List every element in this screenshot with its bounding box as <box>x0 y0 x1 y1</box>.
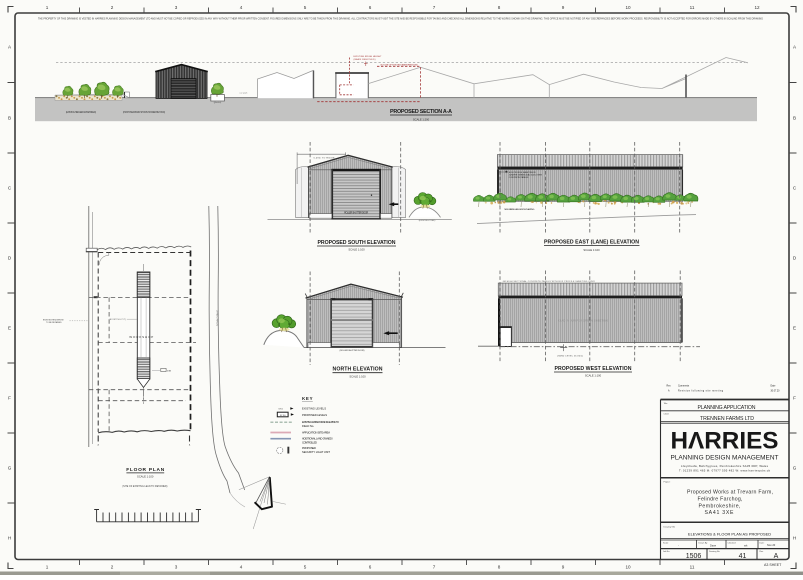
svg-text:Date:: Date: <box>760 541 765 544</box>
svg-text:12: 12 <box>754 5 760 10</box>
svg-text:OUTLINE OF EXISTING BARN REMOV: OUTLINE OF EXISTING BARN REMOVED <box>380 63 418 66</box>
svg-text:WORKSHOP: WORKSHOP <box>129 335 153 339</box>
svg-text:PROPOSED LEVELS: PROPOSED LEVELS <box>302 413 327 417</box>
svg-text:car park: car park <box>240 91 249 94</box>
svg-text:(BARN REMOVED): (BARN REMOVED) <box>354 58 376 61</box>
svg-text:5GB: 5GB <box>167 370 172 372</box>
svg-text:A3 SHEET: A3 SHEET <box>764 563 782 567</box>
svg-text:NORTH ELEVATION: NORTH ELEVATION <box>333 367 383 373</box>
svg-text:B: B <box>8 116 11 121</box>
svg-text:Revision following site meetin: Revision following site meeting <box>678 390 724 393</box>
svg-text:2: 2 <box>111 565 114 570</box>
svg-text:wh: wh <box>744 544 748 548</box>
svg-text:1506: 1506 <box>686 553 702 560</box>
svg-text:3: 3 <box>175 5 178 10</box>
svg-text:ELEVATIONS & FLOOR PLAN AS PRO: ELEVATIONS & FLOOR PLAN AS PROPOSED <box>688 531 771 536</box>
svg-text:57.50: 57.50 <box>280 415 286 417</box>
svg-text:G: G <box>793 466 797 471</box>
svg-text:7: 7 <box>433 565 436 570</box>
svg-text:10: 10 <box>625 565 631 570</box>
svg-text:PLANNING DESIGN MANAGEMENT: PLANNING DESIGN MANAGEMENT <box>671 454 779 461</box>
svg-text:FLOOR PLAN: FLOOR PLAN <box>126 467 165 473</box>
svg-text:Date: Date <box>771 385 777 388</box>
svg-text:EXISTING HEDGEROW: EXISTING HEDGEROW <box>43 319 64 321</box>
svg-text:Project:: Project: <box>664 481 671 484</box>
svg-text:Title:: Title: <box>664 402 669 405</box>
svg-text:TRENNEN FARMS LTD: TRENNEN FARMS LTD <box>700 416 754 422</box>
svg-text:Drawing No.: Drawing No. <box>709 551 720 553</box>
svg-text:8: 8 <box>498 5 501 10</box>
svg-text:Rev.: Rev. <box>667 386 672 388</box>
svg-text:SCALE 1:100: SCALE 1:100 <box>349 374 366 378</box>
svg-text:SCALE 1:100: SCALE 1:100 <box>585 374 602 378</box>
svg-text:PROPOSED SECTION A-A: PROPOSED SECTION A-A <box>390 109 452 115</box>
svg-text:30.07.20: 30.07.20 <box>771 391 781 393</box>
svg-text:PROPOSED WEST ELEVATION: PROPOSED WEST ELEVATION <box>555 366 632 372</box>
svg-text:HΛRRIES: HΛRRIES <box>671 428 779 455</box>
svg-text:SCALE 1:100: SCALE 1:100 <box>137 475 154 479</box>
svg-text:7: 7 <box>433 5 436 10</box>
svg-text:(EXISTING PIT): (EXISTING PIT) <box>109 319 126 321</box>
svg-text:F: F <box>8 396 11 401</box>
svg-text:(EXISTING TREE): (EXISTING TREE) <box>419 220 436 222</box>
svg-text:PROPOSED: PROPOSED <box>302 446 316 450</box>
svg-text:G: G <box>8 466 12 471</box>
svg-text:SECURITY LIGHT UNIT: SECURITY LIGHT UNIT <box>302 450 330 454</box>
svg-text:11: 11 <box>690 5 695 10</box>
svg-text:Nov 20: Nov 20 <box>767 543 776 547</box>
svg-text:F: F <box>793 396 796 401</box>
svg-text:FIELD No.: FIELD No. <box>302 424 314 428</box>
svg-text:EXISTING WATER DRAINAGE PIPE T: EXISTING WATER DRAINAGE PIPE TO <box>302 420 339 424</box>
svg-text:6: 6 <box>369 565 372 570</box>
svg-text:5.49m TO RIDGE: 5.49m TO RIDGE <box>314 157 336 159</box>
svg-text:6: 6 <box>369 5 372 10</box>
svg-text:(PROPOSED BARN SHOWN SHADED BE: (PROPOSED BARN SHOWN SHADED BEYOND) <box>123 111 165 114</box>
svg-text:Rev.: Rev. <box>760 551 764 553</box>
svg-text:5: 5 <box>304 565 307 570</box>
svg-text:8: 8 <box>498 565 501 570</box>
svg-text:JUNIPER GREEN (RAL 6007) OVER: JUNIPER GREEN (RAL 6007) OVER <box>509 174 543 177</box>
svg-text:ADDITIONAL LAND OWNED /: ADDITIONAL LAND OWNED / <box>302 437 333 441</box>
svg-text:T: 01239 891 465 M: 07977 595: T: 01239 891 465 M: 07977 595 482 W: www… <box>679 469 771 473</box>
svg-text:Llwynbedw, Bwlchygroes, Pembro: Llwynbedw, Bwlchygroes, Pembrokeshire SA… <box>681 464 769 468</box>
svg-text:TO BE RETAINED: TO BE RETAINED <box>46 321 62 324</box>
svg-text:Felindre Farchog,: Felindre Farchog, <box>698 497 743 503</box>
svg-text:EXISTING LEVELS: EXISTING LEVELS <box>302 407 326 411</box>
svg-text:H: H <box>8 536 11 541</box>
svg-text:PLANNING APPLICATION: PLANNING APPLICATION <box>698 405 756 411</box>
svg-text:4: 4 <box>240 565 243 570</box>
svg-text:Dave: Dave <box>710 544 717 548</box>
svg-text:3: 3 <box>175 565 178 570</box>
svg-text:THE PROPERTY OF THIS DRAWING I: THE PROPERTY OF THIS DRAWING IS VESTED I… <box>38 16 763 20</box>
svg-text:PROPOSED EAST (LANE) ELEVATION: PROPOSED EAST (LANE) ELEVATION <box>544 239 639 245</box>
svg-text:EXISTING RIDGE HEIGHT: EXISTING RIDGE HEIGHT <box>354 56 383 58</box>
svg-text:10: 10 <box>625 5 631 10</box>
svg-text:LANE (TRACK): LANE (TRACK) <box>215 310 218 326</box>
svg-text:4: 4 <box>240 5 243 10</box>
svg-text:PROPOSED SOUTH ELEVATION: PROPOSED SOUTH ELEVATION <box>318 240 396 246</box>
svg-text:Pembrokeshire,: Pembrokeshire, <box>699 504 741 510</box>
svg-text:Scale:: Scale: <box>663 542 669 544</box>
svg-text:11: 11 <box>690 565 695 570</box>
svg-text:SCALE 1:100: SCALE 1:100 <box>348 247 365 251</box>
svg-text:(SITE OF EXISTING LEAN TO RETA: (SITE OF EXISTING LEAN TO RETAINED) <box>122 485 167 488</box>
svg-text:E: E <box>8 326 11 331</box>
svg-text:5: 5 <box>304 5 307 10</box>
svg-text:Drawing Title: Drawing Title <box>664 525 676 528</box>
svg-text:(ROLLER SHUTTER DOOR): (ROLLER SHUTTER DOOR) <box>340 350 365 352</box>
svg-text:Comments: Comments <box>678 385 690 388</box>
svg-text:-: - <box>678 544 679 547</box>
svg-text:H: H <box>793 536 796 541</box>
svg-text:9: 9 <box>562 5 565 10</box>
svg-text:(YARD LEVEL 56.80m): (YARD LEVEL 56.80m) <box>557 354 583 357</box>
svg-text:Proposed Works at Trevarn Farm: Proposed Works at Trevarn Farm, <box>687 490 773 496</box>
svg-text:SCALE 1:200: SCALE 1:200 <box>413 118 430 122</box>
svg-text:SCALE 1:100: SCALE 1:100 <box>583 248 600 252</box>
svg-text:9: 9 <box>562 565 565 570</box>
svg-text:(planter): (planter) <box>214 101 222 104</box>
svg-text:SA41 3XE: SA41 3XE <box>705 510 735 516</box>
svg-text:1: 1 <box>46 565 49 570</box>
svg-text:Drawn By:: Drawn By: <box>699 542 709 544</box>
svg-text:CLAD IN JUNIPER GREEN SHEETING: CLAD IN JUNIPER GREEN SHEETING <box>558 320 608 323</box>
svg-text:Job No.: Job No. <box>663 551 670 553</box>
svg-text:Checked:: Checked: <box>728 542 737 544</box>
svg-text:E: E <box>793 326 796 331</box>
svg-text:41: 41 <box>739 553 747 560</box>
svg-text:A: A <box>774 553 779 560</box>
svg-text:CONTROLLED: CONTROLLED <box>302 440 317 444</box>
svg-text:ROLLER SHUTTER DOOR: ROLLER SHUTTER DOOR <box>344 212 368 214</box>
svg-text:KEY: KEY <box>302 396 313 401</box>
svg-text:Client:: Client: <box>664 413 670 416</box>
svg-text:APPLICATION SITE AREA: APPLICATION SITE AREA <box>302 430 330 434</box>
svg-text:6M HIGH SECTIONAL CONCRETE PAN: 6M HIGH SECTIONAL CONCRETE PANELS WITH B… <box>503 280 596 283</box>
svg-text:B: B <box>793 116 796 121</box>
svg-text:(EXISTING HEDGEROW RETAINED): (EXISTING HEDGEROW RETAINED) <box>66 111 96 114</box>
svg-text:NEW NATIVE HEDGEROW PLANTING: NEW NATIVE HEDGEROW PLANTING <box>504 208 534 211</box>
svg-text:2: 2 <box>111 5 114 10</box>
svg-text:CONCRETE PANELS: CONCRETE PANELS <box>509 176 529 179</box>
svg-text:1: 1 <box>46 5 49 10</box>
